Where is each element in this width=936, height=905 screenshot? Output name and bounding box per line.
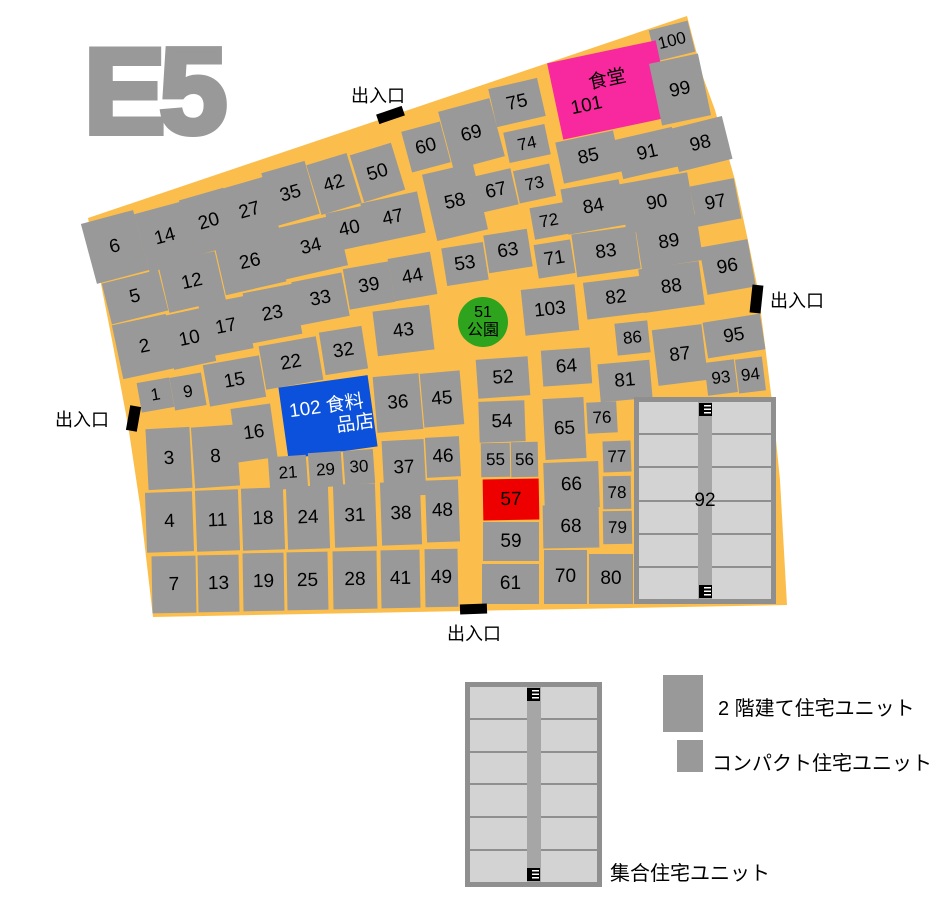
block-label: 11 (196, 509, 240, 532)
block-38: 38 (380, 481, 422, 545)
block-label: 92 (639, 490, 771, 511)
block-32: 32 (319, 326, 368, 375)
block-label: 44 (389, 262, 435, 290)
block-94: 94 (735, 356, 766, 393)
block-76: 76 (586, 401, 618, 434)
block-label: 48 (426, 500, 460, 522)
block-label: 64 (541, 355, 591, 380)
block-label: 82 (584, 283, 648, 312)
block-93: 93 (704, 359, 738, 395)
block-54: 54 (478, 400, 525, 443)
block-label: 57 (483, 488, 539, 510)
block-label: 8 (192, 444, 238, 468)
block-label: 7 (152, 573, 196, 595)
block-83: 83 (571, 226, 640, 277)
block-label: 76 (587, 407, 618, 428)
block-103: 103 (521, 284, 580, 335)
block-label: 73 (514, 170, 554, 196)
block-label: 22 (261, 347, 322, 378)
two-story-unit-label: 2 階建て住宅ユニット (718, 692, 915, 721)
block-label: 38 (381, 502, 422, 525)
block-8: 8 (191, 425, 240, 489)
block-label: 79 (603, 518, 632, 538)
block-86: 86 (614, 320, 650, 355)
block-label: 30 (343, 456, 374, 477)
block-label: 67 (475, 176, 517, 205)
collective-unit-label: 集合住宅ユニット (610, 857, 770, 886)
block-66: 66 (543, 461, 600, 509)
block-label: 61 (482, 573, 539, 594)
block-36: 36 (373, 373, 424, 433)
block-68: 68 (543, 505, 600, 549)
block-label: 5 (104, 280, 165, 315)
block-label: 98 (671, 127, 730, 161)
two-story-unit-swatch (663, 675, 703, 732)
block-label: 15 (205, 366, 265, 397)
stairs-icon (527, 868, 540, 881)
block-55: 55 (481, 443, 511, 478)
block-label: 37 (382, 456, 425, 479)
stairs-icon (699, 403, 712, 416)
block-label: 17 (201, 312, 250, 342)
block-label: 33 (293, 284, 347, 315)
block-label: 1 (138, 383, 174, 407)
block-label: 70 (544, 566, 587, 587)
block-46: 46 (425, 436, 461, 478)
block-label: 65 (543, 417, 585, 440)
block-label: 88 (640, 272, 703, 302)
block-label: 43 (374, 316, 433, 344)
block-label: 41 (381, 568, 420, 590)
stairs-icon (699, 585, 712, 598)
block-97: 97 (690, 178, 742, 227)
block-label: 4 (146, 511, 194, 534)
block-label: 99 (653, 74, 706, 105)
block-72: 72 (529, 202, 568, 239)
block-label: 18 (242, 508, 285, 531)
block-label: 97 (691, 188, 739, 217)
entrance-label-right: 出入口 (770, 287, 824, 313)
block-label: 68 (543, 515, 599, 537)
block-label: 16 (233, 420, 276, 447)
block-87: 87 (652, 324, 708, 386)
collective-unit-diagram (465, 682, 602, 887)
block-label: 53 (443, 250, 488, 278)
block-label: 51 (458, 304, 508, 322)
block-53: 53 (441, 242, 488, 286)
block-label: 74 (504, 130, 549, 157)
block-label: 75 (490, 87, 544, 119)
block-label: 14 (139, 221, 191, 254)
block-79: 79 (603, 511, 633, 545)
block-label: 26 (217, 244, 282, 279)
compact-unit-label: コンパクト住宅ユニット (712, 747, 932, 776)
block-64: 64 (541, 347, 592, 386)
block-59: 59 (483, 522, 539, 561)
block-49: 49 (424, 549, 458, 608)
park-block-51: 51公園 (458, 297, 508, 347)
block-label: 50 (354, 156, 401, 189)
block-25: 25 (286, 552, 328, 611)
block-4: 4 (145, 491, 194, 553)
block-48: 48 (425, 479, 460, 542)
entrance-label-top: 出入口 (351, 82, 405, 108)
block-29: 29 (308, 451, 343, 488)
block-19: 19 (242, 553, 284, 612)
block-label: 90 (621, 186, 694, 219)
block-77: 77 (602, 441, 631, 473)
block-label: 39 (345, 271, 394, 300)
block-label: 36 (374, 390, 422, 415)
block-label: 55 (481, 450, 510, 470)
highlighted-block-57: 57 (483, 479, 540, 521)
block-label: 23 (245, 298, 299, 329)
block-label: 35 (266, 177, 315, 210)
block-82: 82 (583, 275, 649, 319)
block-31: 31 (333, 483, 377, 547)
block-label: 86 (615, 327, 650, 349)
block-label: 94 (736, 364, 765, 386)
block-label: 56 (511, 450, 538, 469)
block-78: 78 (603, 476, 632, 509)
block-label: 52 (476, 365, 529, 390)
block-label: 103 (522, 297, 578, 324)
block-52: 52 (476, 356, 531, 399)
collective-block-92: 92 (634, 397, 776, 604)
block-label: 31 (334, 504, 377, 527)
block-label: 32 (321, 337, 367, 365)
block-label: 3 (146, 447, 191, 471)
block-43: 43 (372, 305, 434, 357)
block-label: 54 (479, 410, 526, 433)
block-label: 2 (115, 330, 173, 362)
block-21: 21 (268, 455, 308, 491)
block-label: 78 (603, 483, 631, 503)
block-label: 46 (425, 445, 460, 468)
block-label: 72 (531, 209, 568, 234)
block-13: 13 (198, 555, 240, 613)
block-3: 3 (145, 427, 192, 490)
block-61: 61 (482, 564, 539, 604)
block-label: 96 (702, 252, 754, 281)
block-label: 83 (573, 237, 639, 267)
block-44: 44 (388, 252, 438, 302)
block-70: 70 (544, 550, 587, 604)
block-label: 71 (535, 246, 575, 273)
block-56: 56 (511, 442, 539, 477)
block-label: 80 (589, 568, 633, 589)
block-label: 9 (171, 379, 206, 403)
block-label: 42 (311, 168, 357, 201)
entrance-label-bottom: 出入口 (447, 620, 501, 646)
block-label: 59 (483, 531, 539, 552)
block-label: 69 (443, 117, 500, 151)
block-label: 28 (333, 569, 377, 591)
block-label: 19 (243, 571, 284, 593)
block-label: 24 (287, 506, 330, 529)
block-label: 45 (421, 387, 463, 412)
corridor (527, 687, 541, 882)
block-label: 27 (224, 194, 275, 227)
block-45: 45 (420, 370, 465, 427)
compact-unit-swatch (677, 740, 703, 772)
block-label: 77 (603, 447, 632, 467)
block-label: 6 (86, 230, 144, 265)
block-label: 47 (362, 202, 423, 235)
block-18: 18 (241, 487, 285, 550)
block-7: 7 (152, 556, 197, 614)
district-map-page: E5 6142027354250606975100食堂1019951226344… (0, 0, 936, 905)
block-30: 30 (343, 449, 375, 485)
block-label: 66 (544, 473, 600, 496)
stairs-icon (527, 688, 540, 701)
block-1: 1 (137, 377, 175, 412)
block-label: 85 (557, 140, 619, 173)
block-label: 84 (563, 191, 625, 222)
block-label: 49 (425, 567, 458, 589)
block-label: 29 (308, 459, 342, 480)
block-81: 81 (597, 360, 652, 402)
block-41: 41 (380, 550, 420, 609)
grocery-block-102: 102 食料品店 (278, 375, 377, 459)
block-9: 9 (169, 372, 206, 410)
district-title: E5 (84, 30, 221, 152)
block-label: 87 (654, 341, 706, 368)
block-label: 12 (161, 265, 222, 299)
block-label: 93 (705, 366, 737, 389)
block-label: 91 (616, 136, 678, 170)
block-80: 80 (589, 554, 633, 604)
block-label: 25 (287, 570, 328, 592)
block-96: 96 (699, 239, 756, 295)
block-28: 28 (332, 551, 377, 610)
block-label: 95 (704, 321, 765, 351)
block-label: 公園 (458, 322, 508, 340)
block-label: 21 (268, 462, 307, 484)
block-label: 58 (427, 186, 482, 218)
block-label: 60 (404, 132, 448, 163)
block-label: 81 (598, 368, 652, 394)
block-63: 63 (483, 229, 532, 273)
block-label: 89 (637, 227, 702, 258)
block-71: 71 (534, 239, 576, 278)
block-label: 63 (485, 237, 532, 265)
block-label: 13 (198, 573, 239, 595)
block-11: 11 (195, 489, 240, 551)
entrance-label-left: 出入口 (55, 406, 109, 432)
block-24: 24 (286, 485, 330, 549)
entrance-bar-bottom (460, 604, 487, 615)
block-65: 65 (542, 397, 586, 460)
block-39: 39 (343, 261, 395, 309)
